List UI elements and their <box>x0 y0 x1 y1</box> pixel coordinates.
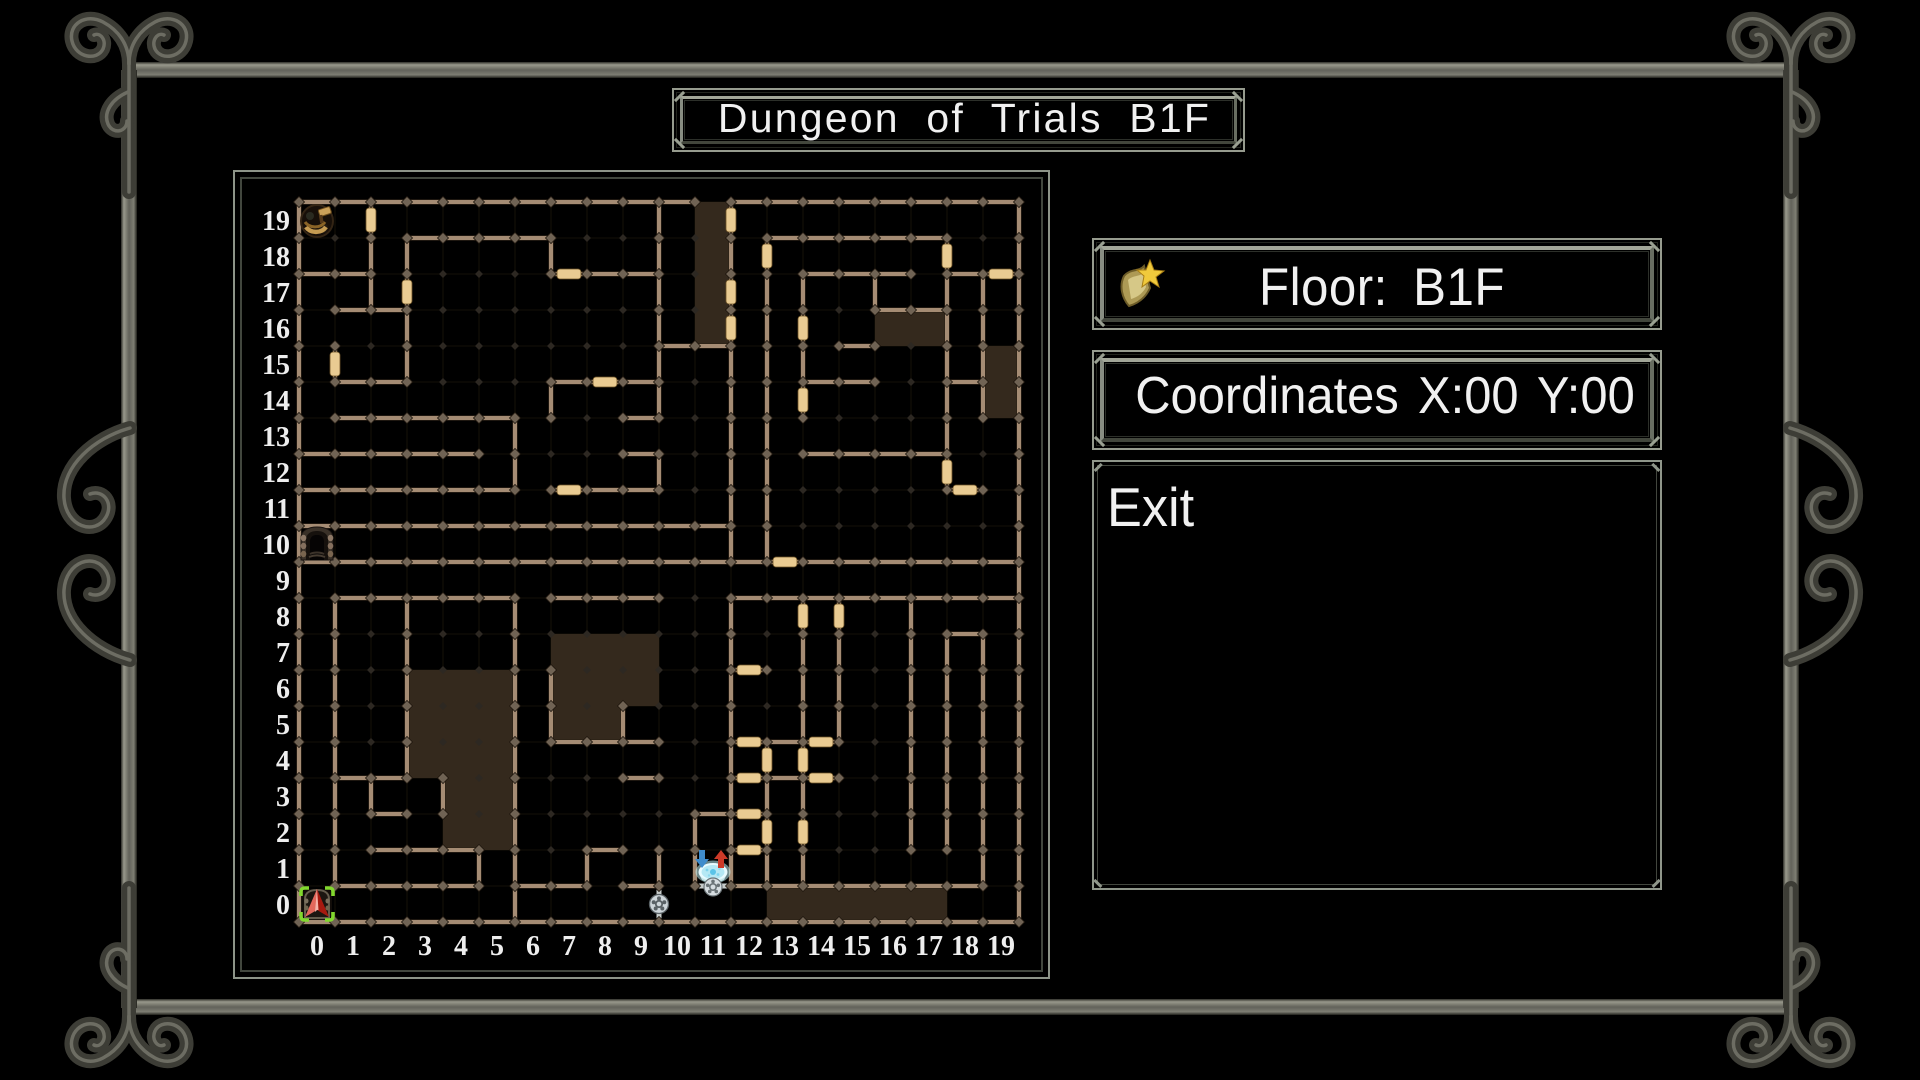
svg-text:18: 18 <box>951 931 979 962</box>
svg-text:8: 8 <box>598 931 612 962</box>
svg-text:2: 2 <box>276 818 290 849</box>
svg-text:5: 5 <box>276 710 290 741</box>
svg-text:11: 11 <box>700 931 726 962</box>
svg-text:9: 9 <box>634 931 648 962</box>
svg-text:15: 15 <box>843 931 871 962</box>
svg-text:7: 7 <box>276 638 290 669</box>
svg-text:4: 4 <box>276 746 290 777</box>
svg-text:10: 10 <box>262 530 290 561</box>
svg-text:16: 16 <box>262 314 290 345</box>
svg-text:1: 1 <box>346 931 360 962</box>
svg-text:1: 1 <box>276 854 290 885</box>
svg-text:17: 17 <box>262 278 290 309</box>
svg-text:9: 9 <box>276 566 290 597</box>
svg-text:16: 16 <box>879 931 907 962</box>
svg-text:14: 14 <box>262 386 290 417</box>
svg-text:5: 5 <box>490 931 504 962</box>
svg-text:19: 19 <box>987 931 1015 962</box>
svg-text:0: 0 <box>276 890 290 921</box>
svg-text:6: 6 <box>276 674 290 705</box>
svg-text:11: 11 <box>264 494 290 525</box>
svg-text:4: 4 <box>454 931 468 962</box>
svg-text:14: 14 <box>807 931 835 962</box>
svg-text:13: 13 <box>771 931 799 962</box>
svg-text:12: 12 <box>735 931 763 962</box>
svg-text:18: 18 <box>262 242 290 273</box>
svg-text:15: 15 <box>262 350 290 381</box>
svg-text:10: 10 <box>663 931 691 962</box>
svg-text:12: 12 <box>262 458 290 489</box>
svg-text:17: 17 <box>915 931 943 962</box>
svg-text:19: 19 <box>262 206 290 237</box>
svg-text:6: 6 <box>526 931 540 962</box>
svg-text:13: 13 <box>262 422 290 453</box>
svg-text:7: 7 <box>562 931 576 962</box>
svg-text:0: 0 <box>310 931 324 962</box>
svg-text:3: 3 <box>418 931 432 962</box>
svg-text:8: 8 <box>276 602 290 633</box>
svg-text:3: 3 <box>276 782 290 813</box>
svg-text:2: 2 <box>382 931 396 962</box>
